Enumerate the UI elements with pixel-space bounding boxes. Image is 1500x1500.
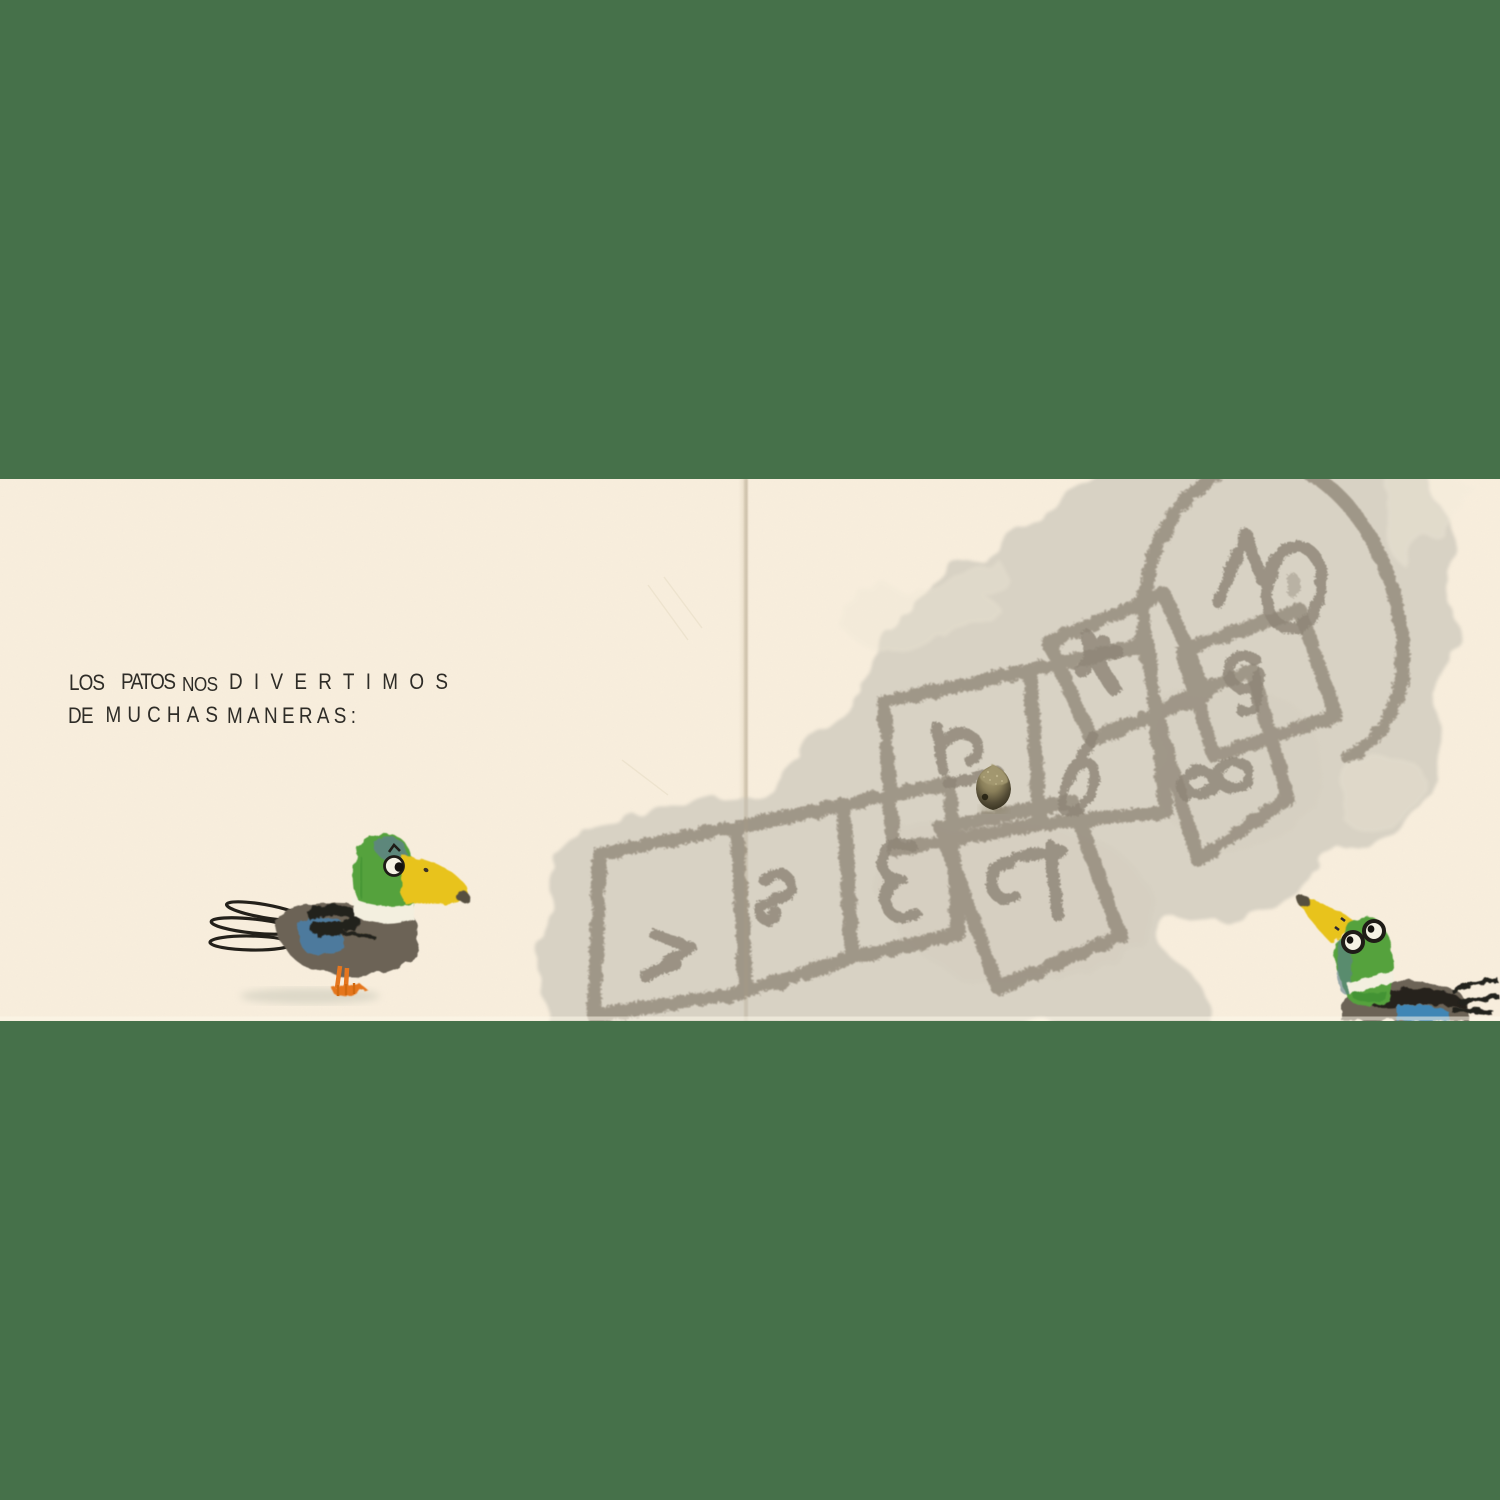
svg-text:MANERAS:: MANERAS: [227,704,356,729]
svg-text:DE: DE [68,704,94,729]
svg-text:LOS: LOS [69,671,105,696]
svg-text:NOS: NOS [182,674,218,697]
svg-text:PATOS: PATOS [121,670,176,695]
